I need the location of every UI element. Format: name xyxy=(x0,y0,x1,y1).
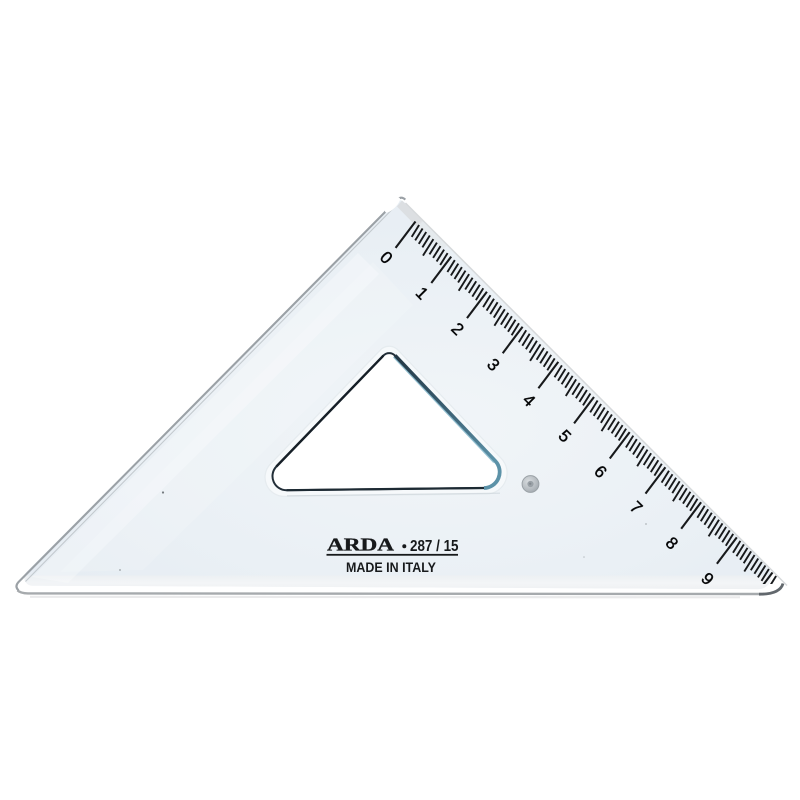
svg-text:287 / 15: 287 / 15 xyxy=(410,538,459,555)
svg-text:MADE IN ITALY: MADE IN ITALY xyxy=(346,560,436,575)
svg-text:ARDA: ARDA xyxy=(327,535,394,555)
